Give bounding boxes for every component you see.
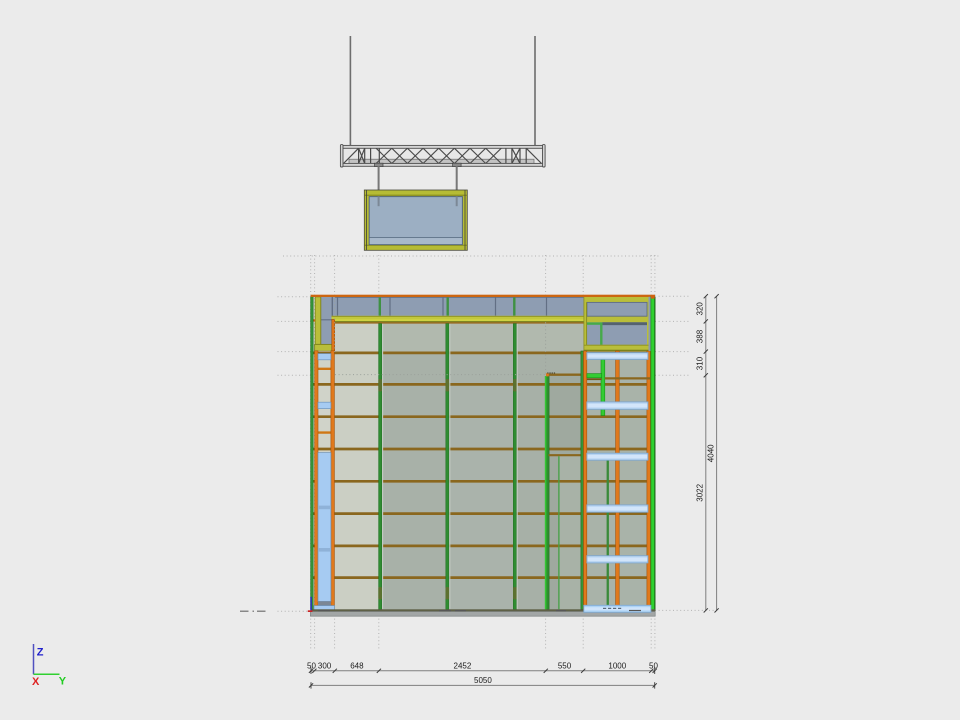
svg-text:50: 50 xyxy=(649,661,658,670)
svg-text:2452: 2452 xyxy=(454,661,472,670)
svg-text:648: 648 xyxy=(350,661,364,670)
svg-text:320: 320 xyxy=(696,302,705,316)
svg-text:310: 310 xyxy=(696,356,705,370)
svg-text:50: 50 xyxy=(307,661,316,670)
svg-text:Y: Y xyxy=(59,675,67,687)
svg-text:X: X xyxy=(32,676,40,688)
svg-text:4040: 4040 xyxy=(706,444,715,462)
svg-text:Z: Z xyxy=(37,647,44,659)
svg-text:300: 300 xyxy=(318,661,332,670)
svg-text:388: 388 xyxy=(696,329,705,343)
svg-text:5050: 5050 xyxy=(474,676,492,685)
svg-text:3022: 3022 xyxy=(696,483,705,501)
svg-text:550: 550 xyxy=(558,661,572,670)
svg-text:1000: 1000 xyxy=(608,661,626,670)
